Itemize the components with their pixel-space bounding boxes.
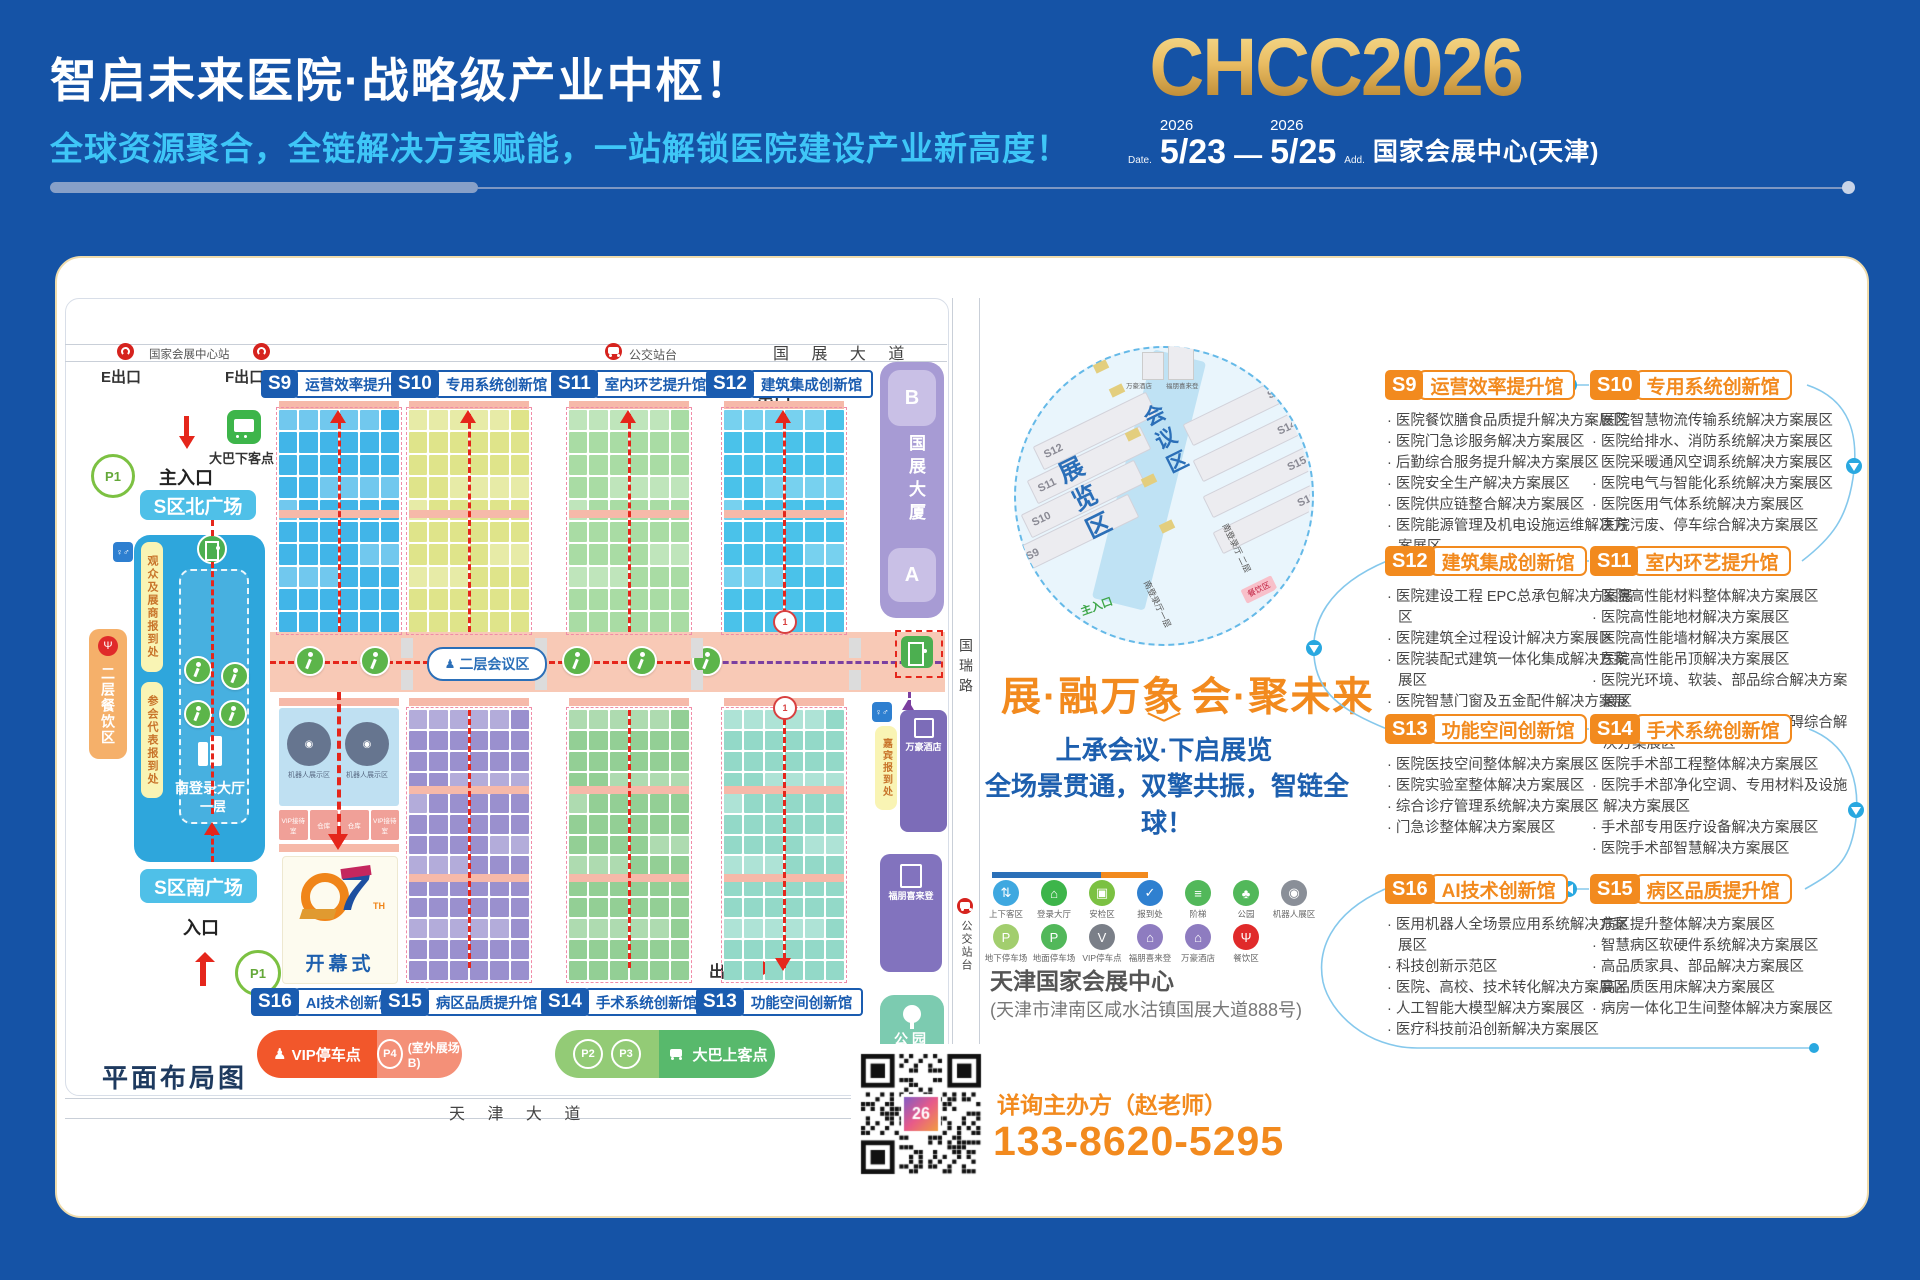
booth: [826, 710, 844, 729]
entrance-arrow-stem: [200, 960, 206, 986]
route-arrow-S13: [775, 958, 791, 979]
booth: [490, 856, 508, 875]
booth: [409, 731, 427, 750]
booth: [650, 794, 668, 813]
booth: [470, 731, 488, 750]
booth: [511, 589, 529, 609]
opening-label: 开幕式: [283, 949, 397, 976]
booth: [785, 919, 803, 938]
booth: [765, 752, 783, 771]
booth: [805, 567, 823, 587]
booth: [765, 522, 783, 542]
booth: [340, 612, 358, 632]
route-hall: [211, 562, 214, 814]
tower-a-label: A: [888, 548, 936, 602]
booth: [744, 940, 762, 959]
vip-parking-icon: V: [1089, 924, 1115, 950]
booth: [299, 612, 317, 632]
right-road-name: 国瑞路: [956, 638, 976, 698]
hall-name-S11: 室内环艺提升馆: [594, 370, 718, 398]
booth: [785, 752, 803, 771]
booth: [650, 455, 668, 475]
booth: [429, 898, 447, 917]
booth: [650, 432, 668, 452]
hall-code-S16: S16: [251, 988, 299, 1016]
overview-sheraton-label: 福朋喜来登: [1166, 380, 1199, 390]
booth: [470, 567, 488, 587]
booth: [569, 794, 587, 813]
legend-item: ♣公园: [1221, 880, 1271, 920]
top-road-name: 国 展 大 道: [773, 340, 913, 364]
tower-name: 国展大厦: [903, 434, 928, 526]
visitor-checkin-label: 观众及展商报到处: [141, 542, 163, 672]
booth: [610, 589, 628, 609]
delegate-checkin-label: 参会代表报到处: [141, 682, 163, 798]
booth: [589, 455, 607, 475]
booth: [429, 731, 447, 750]
booth: [650, 898, 668, 917]
booth: [805, 919, 823, 938]
year-start: 2026: [1160, 118, 1226, 133]
booth: [826, 612, 844, 632]
section-name-S15: 病区品质提升馆: [1635, 874, 1792, 904]
booth: [724, 589, 742, 609]
hall-name-S13: 功能空间创新馆: [740, 988, 864, 1016]
legend-item: ⇅上下客区: [981, 880, 1031, 920]
booth: [630, 836, 648, 855]
route-arrow-S11: [620, 402, 636, 423]
booth: [610, 836, 628, 855]
metro-icon-2: [253, 343, 270, 360]
legend-item: ⌂福朋喜来登: [1125, 924, 1175, 964]
booth: [429, 815, 447, 834]
robot-zone-label: 机器人展示区: [281, 770, 337, 780]
booth: [511, 836, 529, 855]
route-arrow-S12: [775, 402, 791, 423]
booth: [826, 567, 844, 587]
escalator-icon-hall-4: [219, 700, 247, 728]
service-block-5: [691, 670, 703, 690]
booth: [630, 731, 648, 750]
vip-cell: VIP接待室: [371, 810, 400, 840]
hall-label-S14: S14手术系统创新馆: [541, 988, 708, 1016]
hall-code-S13: S13: [696, 988, 744, 1016]
booth: [511, 477, 529, 497]
tower-b-label: B: [888, 370, 936, 426]
legend-label: VIP停车点: [1077, 952, 1127, 964]
booth: [744, 898, 762, 917]
section-code-S13: S13: [1385, 714, 1435, 744]
booth: [589, 710, 607, 729]
booth: [724, 477, 742, 497]
section-code-S15: S15: [1590, 874, 1640, 904]
booth: [340, 432, 358, 452]
booth: [511, 544, 529, 564]
booth: [671, 612, 689, 632]
booth: [511, 731, 529, 750]
legend-item: ✓报到处: [1125, 880, 1175, 920]
bottom-road-name: 天 津 大 道: [449, 1100, 589, 1124]
booth: [724, 455, 742, 475]
robot-zone-circle: ◉: [287, 722, 331, 766]
booth: [429, 567, 447, 587]
booth: [450, 567, 468, 587]
booth: [569, 856, 587, 875]
booth: [450, 919, 468, 938]
conference-pill: ♟ 二层会议区: [427, 647, 547, 681]
booth: [724, 410, 742, 430]
hall-name-S14: 手术系统创新馆: [585, 988, 709, 1016]
booth: [569, 455, 587, 475]
robot-zone-label: 机器人展示区: [339, 770, 395, 780]
section-name-S10: 专用系统创新馆: [1635, 370, 1792, 400]
booth: [671, 961, 689, 980]
booth: [340, 567, 358, 587]
escalator-icon-corridor-2: [562, 646, 592, 676]
booth: [381, 567, 399, 587]
booth: [765, 794, 783, 813]
booth: [765, 455, 783, 475]
dining-area-icon: Ψ: [98, 636, 118, 656]
booth: [381, 589, 399, 609]
booth: [671, 522, 689, 542]
venue-address-name: 天津国家会展中心: [990, 962, 1174, 996]
overview-booth-chip-4: [1093, 359, 1110, 373]
booth: [671, 856, 689, 875]
legend-item: P地下停车场: [981, 924, 1031, 964]
underground-parking-icon: P: [993, 924, 1019, 950]
opening-th: TH: [373, 901, 385, 911]
chcc-logo: CHCC2026: [1149, 30, 1522, 106]
booth: [724, 612, 742, 632]
booth: [429, 477, 447, 497]
booth: [381, 432, 399, 452]
booth: [650, 919, 668, 938]
stairs-icon: ≡: [1185, 880, 1211, 906]
vip-person-icon: ♟: [273, 1045, 286, 1063]
booth: [429, 752, 447, 771]
booth: [765, 940, 783, 959]
booth: [765, 856, 783, 875]
date-end: 5/25: [1270, 135, 1336, 169]
main-entrance-arrow-stem: [184, 416, 189, 440]
booth: [450, 815, 468, 834]
booth: [744, 919, 762, 938]
booth: [429, 455, 447, 475]
booth: [765, 731, 783, 750]
booth: [569, 961, 587, 980]
booth: [381, 522, 399, 542]
booth: [360, 567, 378, 587]
bottom-road-line1: [65, 1098, 947, 1099]
booth: [744, 815, 762, 834]
booth: [470, 794, 488, 813]
booth: [610, 612, 628, 632]
route-arrow-S10: [460, 402, 476, 423]
booth: [765, 919, 783, 938]
booth: [589, 477, 607, 497]
booth: [569, 898, 587, 917]
booth: [650, 940, 668, 959]
robot-zone-circle: ◉: [345, 722, 389, 766]
booth: [409, 815, 427, 834]
booth: [299, 567, 317, 587]
section-header-S9: S9运营效率提升馆: [1385, 370, 1575, 400]
booth: [744, 752, 762, 771]
booth: [826, 752, 844, 771]
contact-label: 详询主办方（赵老师）: [997, 1086, 1227, 1120]
section-name-S9: 运营效率提升馆: [1418, 370, 1575, 400]
login-hall-icon: ⌂: [1041, 880, 1067, 906]
overview-booth-chip-0: [1109, 383, 1126, 397]
booth: [279, 567, 297, 587]
booth: [470, 455, 488, 475]
divider-bar: [50, 182, 478, 193]
slogan-line1: 上承会议·下启展览: [1014, 730, 1314, 767]
booth: [320, 455, 338, 475]
booth: [630, 589, 648, 609]
booth: [650, 815, 668, 834]
date-end-block: 20265/25: [1270, 118, 1336, 169]
booth: [826, 455, 844, 475]
booth: [470, 432, 488, 452]
booth: [650, 856, 668, 875]
year-end: 2026: [1270, 118, 1336, 133]
booth: [589, 589, 607, 609]
booth: [671, 589, 689, 609]
page-subtitle: 全球资源聚合，全链解决方案赋能，一站解锁医院建设产业新高度！: [50, 122, 1070, 170]
booth: [630, 794, 648, 813]
booth: [320, 612, 338, 632]
entrance-label: 入口: [183, 914, 219, 940]
booth: [826, 898, 844, 917]
route-north: [211, 520, 214, 536]
booth: [360, 522, 378, 542]
booth: [409, 612, 427, 632]
booth: [671, 919, 689, 938]
booth: [589, 794, 607, 813]
booth: [826, 815, 844, 834]
opening-ring-foot: [299, 909, 336, 919]
dining-area-label: 二层餐饮区: [97, 660, 119, 752]
booth: [589, 612, 607, 632]
booth: [650, 567, 668, 587]
booth: [630, 919, 648, 938]
booth: [671, 567, 689, 587]
route-arrow-S9: [330, 402, 346, 423]
bus-stop-label-right: 公交站台: [958, 920, 974, 972]
booth: [470, 961, 488, 980]
booth: [470, 919, 488, 938]
booth: [490, 477, 508, 497]
booth: [724, 544, 742, 564]
opening-ceremony-panel: 7TH开幕式: [282, 856, 398, 984]
plan-title: 平面布局图: [102, 1058, 247, 1095]
section-connectors: [1297, 348, 1867, 1068]
marriott-icon: ⌂: [1185, 924, 1211, 950]
booth: [744, 477, 762, 497]
booth: [671, 432, 689, 452]
booth: [470, 836, 488, 855]
booth: [340, 477, 358, 497]
booth: [360, 544, 378, 564]
booth: [490, 752, 508, 771]
booth: [610, 567, 628, 587]
booth: [826, 522, 844, 542]
booth: [360, 432, 378, 452]
booth: [650, 410, 668, 430]
booth: [340, 455, 358, 475]
booth: [511, 432, 529, 452]
booth: [630, 940, 648, 959]
booth: [470, 544, 488, 564]
booth: [299, 544, 317, 564]
sheraton-icon: ⌂: [1137, 924, 1163, 950]
route-dash-S13: [783, 710, 786, 968]
service-block-1: [401, 670, 413, 690]
booth: [650, 477, 668, 497]
route-south: [211, 830, 214, 862]
booth: [785, 432, 803, 452]
booth: [765, 432, 783, 452]
booth: [409, 940, 427, 959]
booth: [785, 794, 803, 813]
booth: [409, 567, 427, 587]
booth: [744, 410, 762, 430]
south-hall-name: 南登录大厅: [175, 778, 245, 798]
booth: [429, 589, 447, 609]
legend-label: 安检区: [1077, 908, 1127, 920]
booth: [569, 612, 587, 632]
legend-label: 上下客区: [981, 908, 1031, 920]
booth: [320, 477, 338, 497]
legend-item: ▣安检区: [1077, 880, 1127, 920]
legend-item: P地面停车场: [1029, 924, 1079, 964]
booth: [490, 544, 508, 564]
legend-label: 餐饮区: [1221, 952, 1271, 964]
bus-dropoff-icon: [227, 410, 261, 444]
booth: [805, 898, 823, 917]
building-icon: [192, 736, 228, 766]
booth: [744, 589, 762, 609]
booth: [671, 410, 689, 430]
booth: [650, 961, 668, 980]
service-block-0: [401, 638, 413, 658]
booth: [671, 815, 689, 834]
booth: [724, 856, 742, 875]
booth: [744, 856, 762, 875]
event-dates: Date. 20265/23 — 20265/25 Add. 国家会展中心(天津…: [1128, 118, 1600, 169]
section-name-S14: 手术系统创新馆: [1635, 714, 1792, 744]
booth: [630, 567, 648, 587]
booth: [511, 710, 529, 729]
booth: [409, 919, 427, 938]
booth: [490, 612, 508, 632]
booth: [826, 432, 844, 452]
booth: [490, 567, 508, 587]
booth: [610, 919, 628, 938]
opening-route: [337, 692, 341, 834]
marriott-label: 万豪酒店: [900, 740, 947, 753]
booth: [610, 544, 628, 564]
sheraton-hotel: 福朋喜来登: [880, 854, 942, 972]
hall-door-icon: [197, 534, 227, 564]
booth: [279, 522, 297, 542]
booth: [765, 815, 783, 834]
booth: [569, 710, 587, 729]
booth: [724, 752, 742, 771]
booth: [765, 544, 783, 564]
booth: [805, 612, 823, 632]
booth: [805, 589, 823, 609]
booth: [826, 961, 844, 980]
booth: [569, 567, 587, 587]
booth: [785, 815, 803, 834]
booth: [805, 455, 823, 475]
booth: [724, 940, 742, 959]
date-start: 5/23: [1160, 135, 1226, 169]
booth: [429, 612, 447, 632]
booth: [569, 544, 587, 564]
section-header-S11: S11室内环艺提升馆: [1590, 546, 1791, 576]
booth: [511, 940, 529, 959]
booth: [785, 589, 803, 609]
booth: [569, 752, 587, 771]
booth: [785, 940, 803, 959]
booth: [805, 815, 823, 834]
booth: [589, 940, 607, 959]
booth: [589, 919, 607, 938]
booth: [320, 567, 338, 587]
booth: [805, 544, 823, 564]
hall-code-S14: S14: [541, 988, 589, 1016]
booth: [429, 836, 447, 855]
hall-code-S11: S11: [551, 370, 598, 398]
booth: [409, 961, 427, 980]
booth: [490, 794, 508, 813]
section-name-S12: 建筑集成创新馆: [1430, 546, 1587, 576]
booth: [569, 731, 587, 750]
legend-item: ⌂登录大厅: [1029, 880, 1079, 920]
booth: [589, 856, 607, 875]
route-dash-S10: [468, 414, 471, 632]
booth: [409, 856, 427, 875]
headline-left: 展·融万象: [1001, 664, 1184, 722]
booth: [279, 455, 297, 475]
hall-code-S12: S12: [706, 370, 754, 398]
booth: [279, 410, 297, 430]
booth: [279, 432, 297, 452]
checkin-icon: ✓: [1137, 880, 1163, 906]
booth: [429, 919, 447, 938]
booth: [826, 794, 844, 813]
booth: [805, 710, 823, 729]
legend-label: 报到处: [1125, 908, 1175, 920]
booth: [569, 522, 587, 542]
booth: [381, 612, 399, 632]
booth: [429, 544, 447, 564]
booth: [429, 710, 447, 729]
booth: [671, 940, 689, 959]
page-title: 智启未来医院·战略级产业中枢！: [50, 42, 754, 111]
booth: [569, 836, 587, 855]
hall-label-S11: S11室内环艺提升馆: [551, 370, 717, 398]
hall-code-S10: S10: [391, 370, 439, 398]
booth: [671, 455, 689, 475]
booth: [826, 856, 844, 875]
venue-overview-content: S12S11S10S9S13S14S15S16展览区会议区万豪酒店福朋喜来登南登…: [1014, 346, 1310, 642]
booth: [630, 432, 648, 452]
